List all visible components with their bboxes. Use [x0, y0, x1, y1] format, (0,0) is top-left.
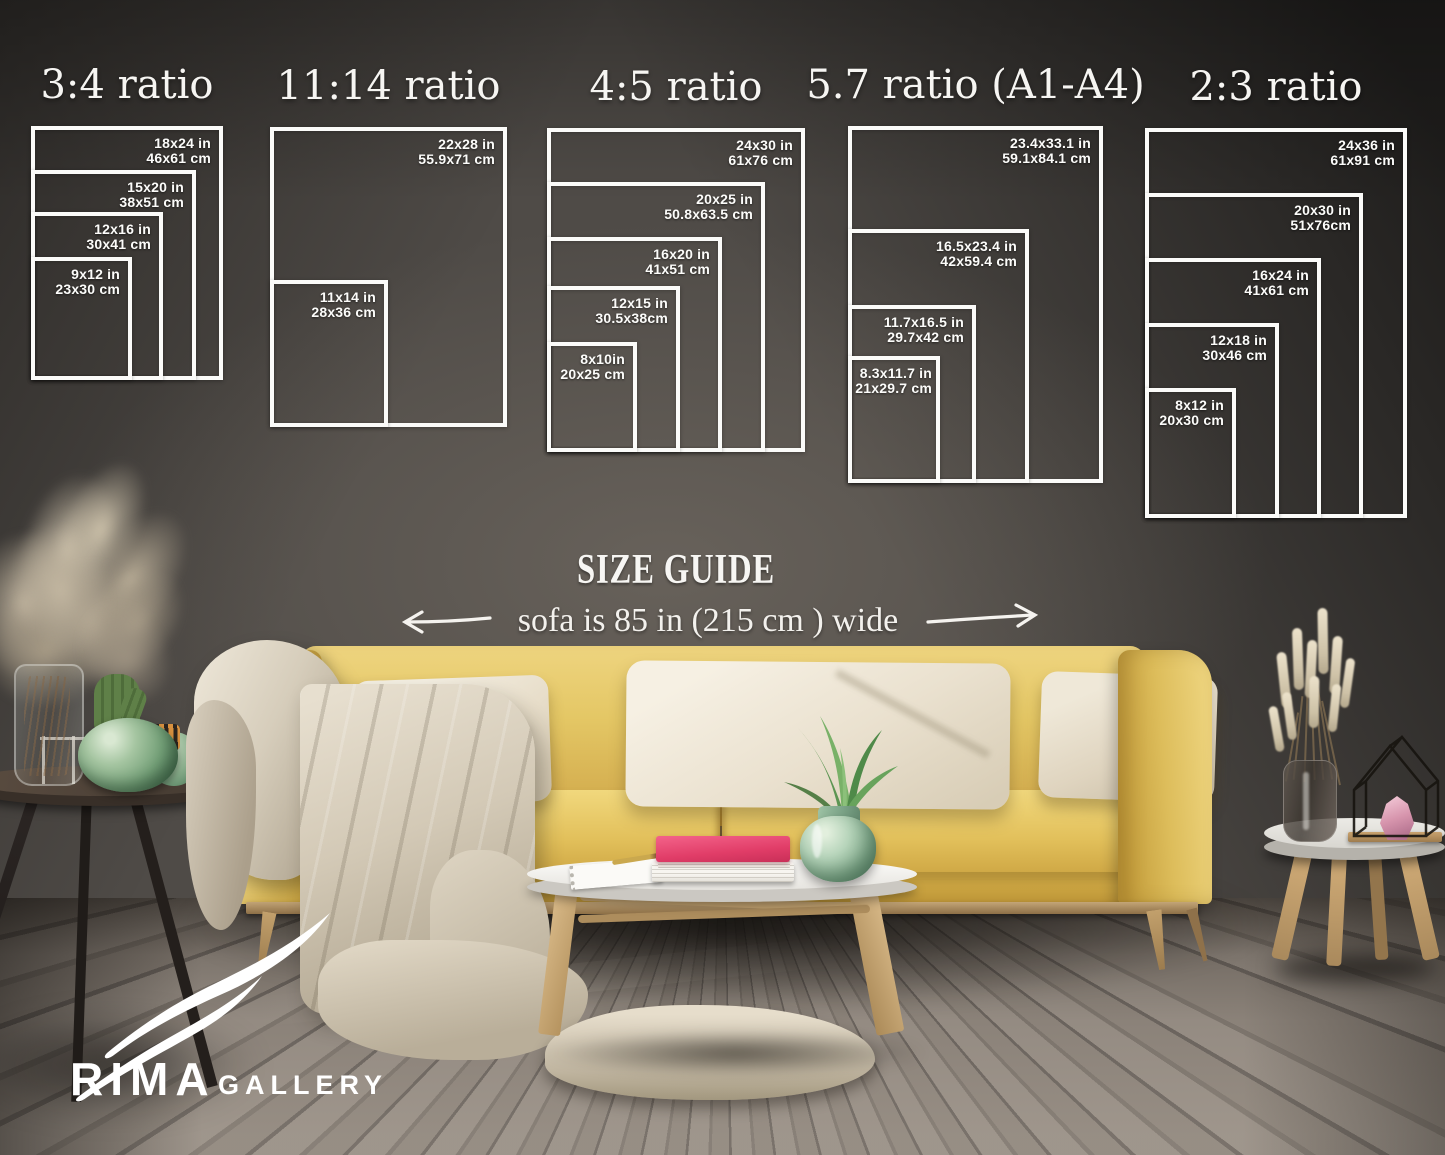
frame-size-label: 11.7x16.5 in29.7x42 cm — [884, 315, 964, 345]
frame-rect: 8x10in20x25 cm — [547, 342, 637, 452]
frame-size-label: 23.4x33.1 in59.1x84.1 cm — [1002, 136, 1091, 166]
ratio-panel-11-14: 11:14 ratio 22x28 in55.9x71 cm 11x14 in2… — [270, 127, 507, 427]
logo-brand-text: RIMA — [70, 1056, 216, 1102]
frame-size-label: 22x28 in55.9x71 cm — [418, 137, 495, 167]
frame-rect: 11x14 in28x36 cm — [270, 280, 388, 427]
frame-size-label: 16.5x23.4 in42x59.4 cm — [936, 239, 1017, 269]
frame-size-label: 24x30 in61x76 cm — [728, 138, 793, 168]
frame-rect: 8x12 in20x30 cm — [1145, 388, 1236, 518]
plant-vase — [800, 816, 876, 882]
frame-size-label: 8x12 in20x30 cm — [1159, 398, 1224, 428]
size-guide-poster: RIMA GALLERY SIZE GUIDE sofa is 85 in (2… — [0, 0, 1445, 1155]
dried-flower — [1309, 676, 1320, 728]
plant-vase-highlight — [812, 824, 822, 858]
dried-flower — [1292, 628, 1304, 690]
sofa-arm-right — [1118, 650, 1212, 904]
book-pink — [656, 836, 790, 862]
smoked-glass-vase — [1283, 760, 1337, 842]
frame-size-label: 24x36 in61x91 cm — [1330, 138, 1395, 168]
ratio-panel-2-3: 2:3 ratio 24x36 in61x91 cm 20x30 in51x76… — [1145, 128, 1407, 518]
frame-size-label: 11x14 in28x36 cm — [311, 290, 376, 320]
frame-size-label: 20x25 in50.8x63.5 cm — [664, 192, 753, 222]
size-guide-title: SIZE GUIDE — [504, 546, 847, 594]
frame-size-label: 15x20 in38x51 cm — [119, 180, 184, 210]
stool-shadow — [1275, 955, 1435, 981]
frame-size-label: 16x24 in41x61 cm — [1244, 268, 1309, 298]
right-width-arrow-icon — [928, 615, 1033, 622]
frame-size-label: 12x16 in30x41 cm — [86, 222, 151, 252]
ratio-panel-5-7: 5.7 ratio (A1-A4) 23.4x33.1 in59.1x84.1 … — [848, 126, 1103, 483]
frame-size-label: 12x15 in30.5x38cm — [595, 296, 668, 326]
frame-size-label: 8x10in20x25 cm — [560, 352, 625, 382]
frame-size-label: 16x20 in41x51 cm — [645, 247, 710, 277]
coffee-table-shadow — [540, 1030, 930, 1076]
left-width-arrow-icon — [407, 618, 490, 622]
frame-size-label: 9x12 in23x30 cm — [55, 267, 120, 297]
green-vase — [78, 718, 178, 792]
vase-highlight — [1303, 772, 1309, 830]
ratio-title: 2:3 ratio — [1066, 64, 1445, 110]
dried-flower — [1317, 608, 1328, 674]
ratio-panel-4-5: 4:5 ratio 24x30 in61x76 cm 20x25 in50.8x… — [547, 128, 805, 452]
frame-rect: 8.3x11.7 in21x29.7 cm — [848, 356, 940, 483]
width-arrows — [395, 595, 1055, 650]
frame-size-label: 18x24 in46x61 cm — [146, 136, 211, 166]
ratio-panel-3-4: 3:4 ratio 18x24 in46x61 cm 15x20 in38x51… — [31, 126, 223, 380]
frame-size-label: 12x18 in30x46 cm — [1202, 333, 1267, 363]
frame-size-label: 8.3x11.7 in21x29.7 cm — [855, 366, 932, 396]
glass-vase — [14, 664, 84, 786]
frame-size-label: 20x30 in51x76cm — [1290, 203, 1351, 233]
logo-suffix-text: GALLERY — [218, 1072, 388, 1099]
frame-rect: 9x12 in23x30 cm — [31, 257, 132, 380]
